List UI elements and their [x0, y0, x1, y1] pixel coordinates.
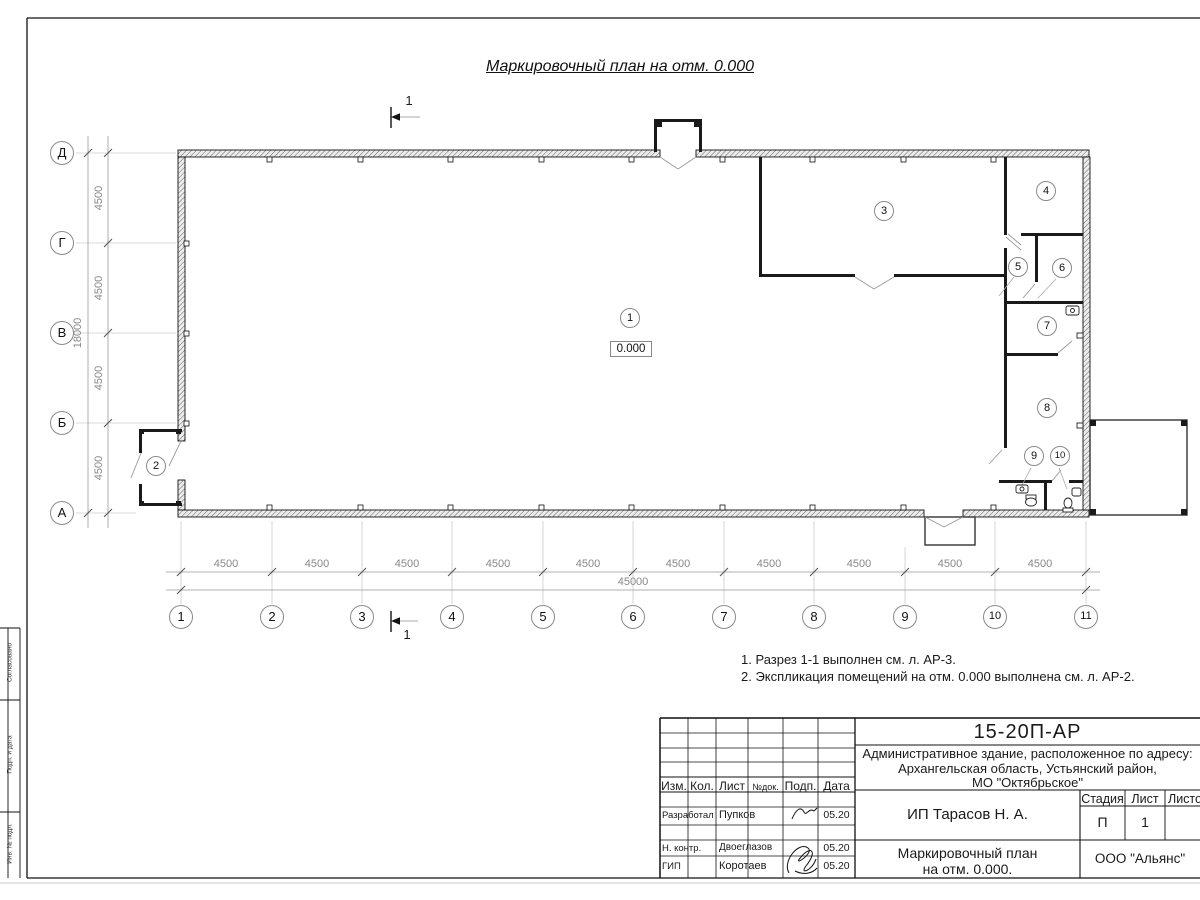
titleblock-project: Административное здание, расположенное п… — [858, 747, 1197, 791]
axis-circle-1: 1 — [169, 605, 193, 629]
axis-circle-g: Г — [50, 231, 74, 255]
col-izm: Изм. — [660, 779, 688, 793]
axis-circle-v: В — [50, 321, 74, 345]
drawing-title: Маркировочный план на отм. 0.000 — [440, 58, 800, 76]
dim-bay: 4500 — [297, 558, 337, 570]
note-2: 2. Экспликация помещений на отм. 0.000 в… — [741, 668, 1135, 685]
dim-bay: 4500 — [206, 558, 246, 570]
dim-bay: 4500 — [93, 448, 105, 488]
dim-bay: 4500 — [93, 178, 105, 218]
sheets-label: Листов — [1168, 792, 1200, 806]
project-line-1: Административное здание, расположенное п… — [858, 747, 1197, 762]
dim-bay: 4500 — [658, 558, 698, 570]
dim-total-height: 18000 — [72, 313, 84, 353]
room-tag-5: 5 — [1008, 257, 1028, 277]
frame-label-inv-podl: Инв. № подл. — [7, 812, 14, 876]
frame-label-soglasovano: Согласовано — [7, 631, 14, 695]
titleblock-doc-number: 15-20П-АР — [855, 721, 1200, 744]
room-tag-8: 8 — [1037, 398, 1057, 418]
dim-bay: 4500 — [478, 558, 518, 570]
sheet-label: Лист — [1125, 792, 1165, 806]
axis-circle-8: 8 — [802, 605, 826, 629]
axis-circle-2: 2 — [260, 605, 284, 629]
col-data: Дата — [818, 779, 855, 793]
frame-label-podp-data: Подп. и дата — [7, 723, 14, 787]
row1-date: 05.20 — [818, 809, 855, 821]
dim-bay: 4500 — [93, 358, 105, 398]
axis-circle-11: 11 — [1074, 605, 1098, 629]
axis-circle-3: 3 — [350, 605, 374, 629]
sink-icon — [1072, 488, 1081, 496]
vestibule-walls — [139, 119, 702, 506]
dim-bay: 4500 — [1020, 558, 1060, 570]
row2-role: Н. контр. — [662, 843, 701, 854]
notes: 1. Разрез 1-1 выполнен см. л. АР-3. 2. Э… — [741, 651, 1135, 685]
stage-value: П — [1080, 814, 1125, 830]
titleblock-org: ООО "Альянс" — [1080, 851, 1200, 866]
dim-bay: 4500 — [568, 558, 608, 570]
room-tag-6: 6 — [1052, 258, 1072, 278]
row1-name: Пупков — [719, 809, 755, 821]
sheet-name-line-1: Маркировочный план — [855, 845, 1080, 861]
col-kol: Кол. — [688, 779, 716, 793]
axis-circle-10: 10 — [983, 605, 1007, 629]
row3-name: Коротаев — [719, 860, 767, 872]
door-swings — [131, 157, 1072, 527]
outer-walls — [178, 150, 1090, 517]
dim-total-width: 45000 — [613, 576, 653, 588]
row2-date: 05.20 — [818, 842, 855, 854]
row3-date: 05.20 — [818, 860, 855, 872]
section-mark-label-top: 1 — [401, 93, 417, 108]
col-list: Лист — [716, 779, 748, 793]
axis-circle-5: 5 — [531, 605, 555, 629]
dim-bay: 4500 — [930, 558, 970, 570]
note-1: 1. Разрез 1-1 выполнен см. л. АР-3. — [741, 651, 1135, 668]
project-line-2: Архангельская область, Устьянский район, — [858, 762, 1197, 777]
ramp-posts — [1090, 420, 1187, 515]
room-tag-7: 7 — [1037, 316, 1057, 336]
signatures — [787, 808, 817, 873]
axis-circle-9: 9 — [893, 605, 917, 629]
sheet-name-line-2: на отм. 0.000. — [855, 861, 1080, 877]
room-tag-1: 1 — [620, 308, 640, 328]
room-tag-4: 4 — [1036, 181, 1056, 201]
room-tag-10: 10 — [1050, 446, 1070, 466]
room-tag-2: 2 — [146, 456, 166, 476]
sheet-no-value: 1 — [1125, 814, 1165, 830]
titleblock-client: ИП Тарасов Н. А. — [855, 806, 1080, 823]
room-tag-9: 9 — [1024, 446, 1044, 466]
axis-circle-a: А — [50, 501, 74, 525]
elevation-mark: 0.000 — [610, 341, 652, 357]
dim-bay: 4500 — [749, 558, 789, 570]
toilet-icon — [1063, 508, 1073, 512]
dim-bay: 4500 — [387, 558, 427, 570]
section-marks — [391, 107, 420, 632]
section-mark-label-bottom: 1 — [399, 627, 415, 642]
axis-circle-6: 6 — [621, 605, 645, 629]
porches — [925, 420, 1187, 545]
row3-role: ГИП — [662, 861, 681, 872]
room-tag-3: 3 — [874, 201, 894, 221]
axis-circle-d: Д — [50, 141, 74, 165]
drawing-sheet: { "sheet": { "title": "Маркировочный пла… — [0, 0, 1200, 900]
dim-bay: 4500 — [93, 268, 105, 308]
col-podp: Подп. — [783, 779, 818, 793]
dimension-lines — [76, 136, 1100, 604]
axis-circle-4: 4 — [440, 605, 464, 629]
dim-bay: 4500 — [839, 558, 879, 570]
axis-circle-b: Б — [50, 411, 74, 435]
row1-role: Разработал — [662, 810, 714, 821]
axis-circle-7: 7 — [712, 605, 736, 629]
row2-name: Двоеглазов — [719, 842, 772, 853]
titleblock-sheet-name: Маркировочный план на отм. 0.000. — [855, 845, 1080, 877]
project-line-3: МО "Октябрьское" — [858, 776, 1197, 791]
col-ndok: №док. — [748, 782, 783, 792]
stage-label: Стадия — [1080, 792, 1125, 806]
